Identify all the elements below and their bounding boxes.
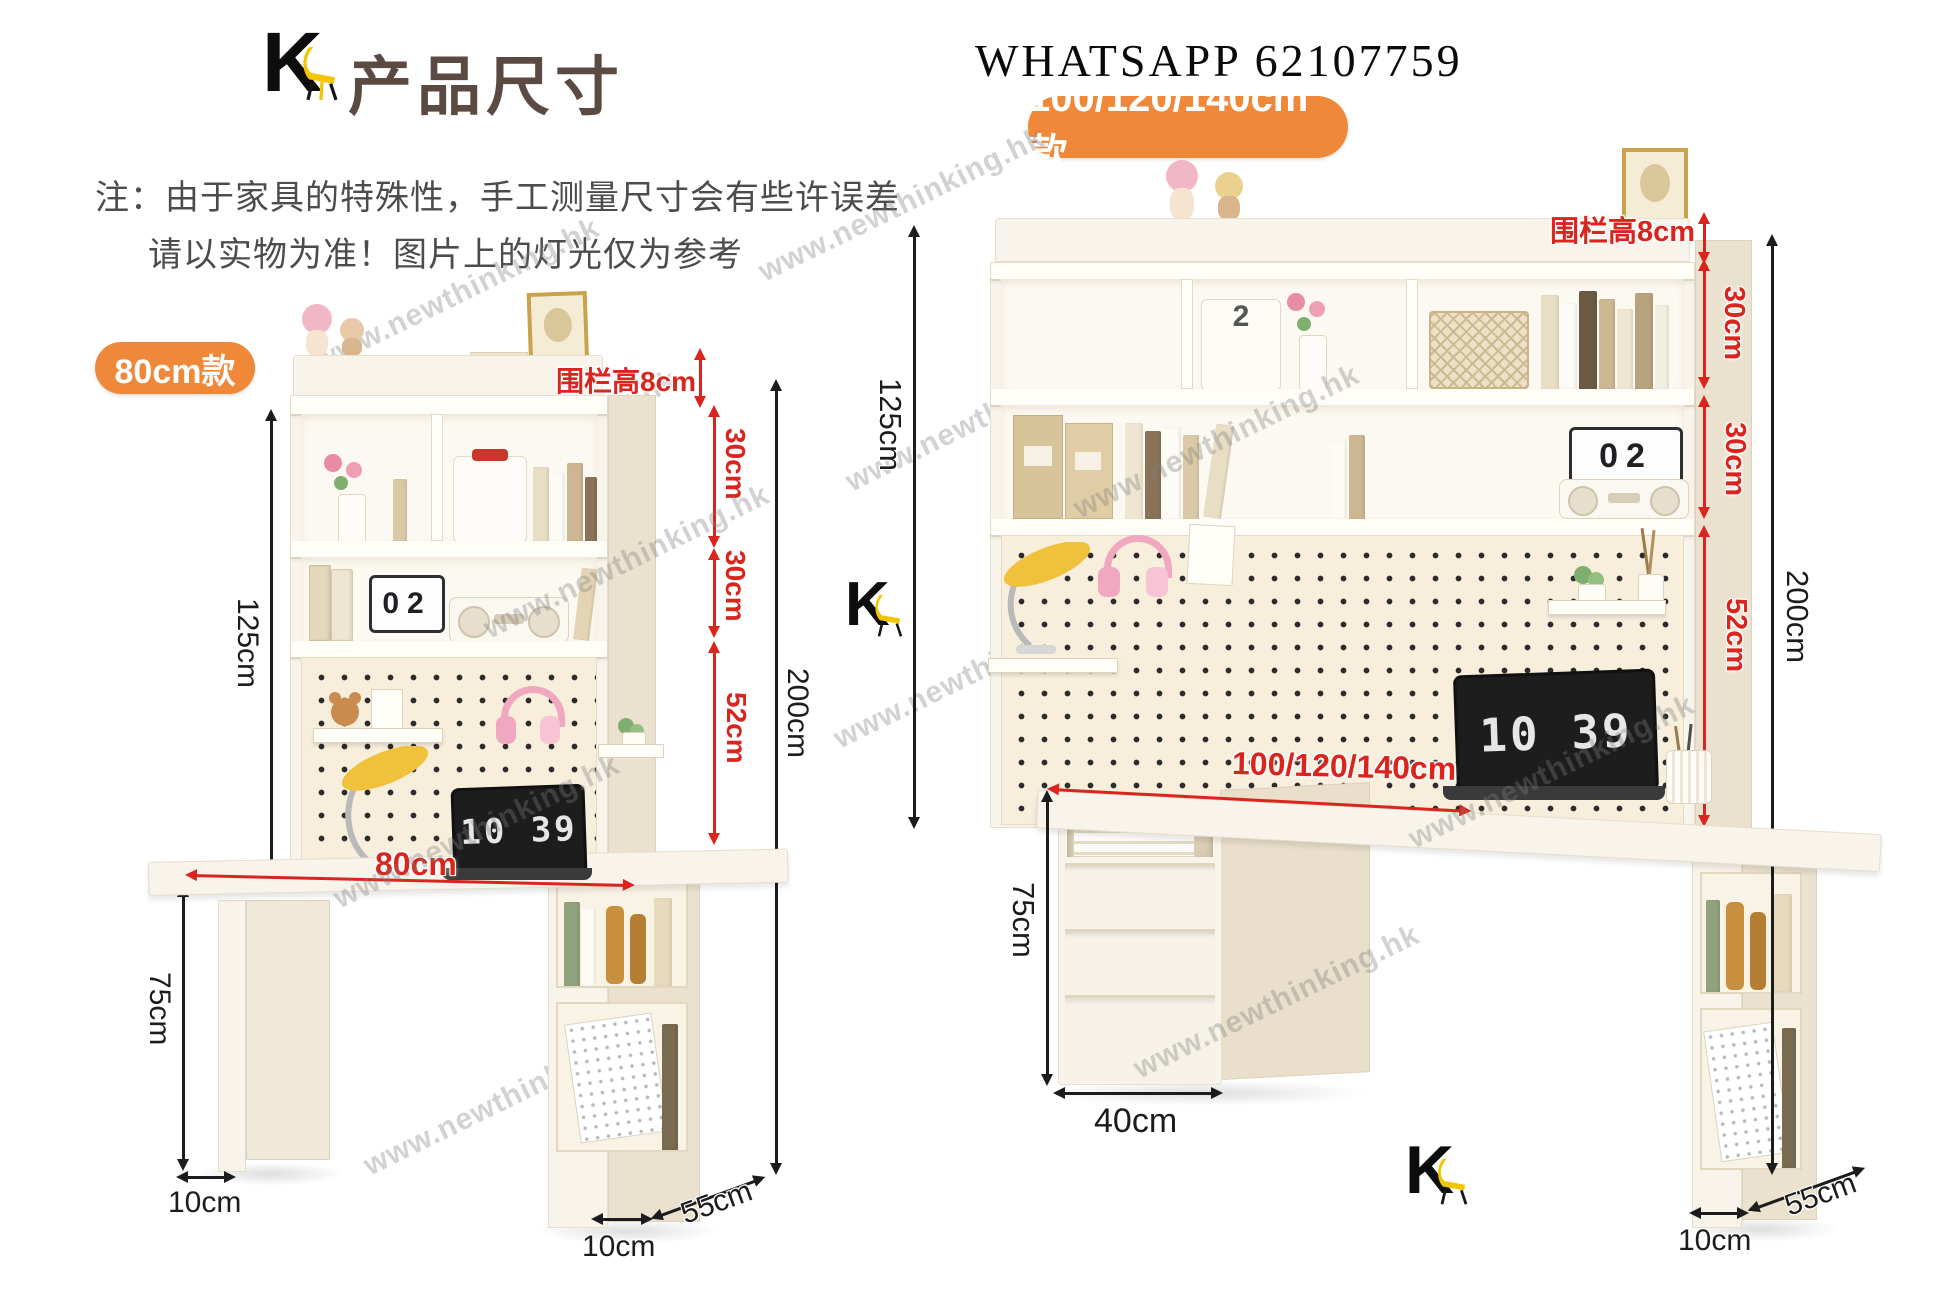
leg-depth-arrow <box>181 1176 231 1179</box>
book-spine <box>1145 431 1161 519</box>
succulent-plant <box>1568 566 1614 602</box>
storage-box <box>453 456 527 543</box>
bottle <box>630 914 646 984</box>
drawer-2 <box>1065 929 1215 996</box>
book-spine <box>1774 894 1792 992</box>
radio-speaker <box>449 597 569 643</box>
desk-width-label: 100/120/140cm <box>1232 745 1457 788</box>
desk-height-arrow <box>1046 795 1049 1081</box>
right-shelf-row-2: 02 <box>1001 405 1684 519</box>
flower-bunch <box>1283 291 1343 389</box>
shelf2-label: 30cm <box>1718 422 1752 496</box>
book-spine <box>1163 427 1181 519</box>
flower-vase <box>316 454 386 541</box>
total-height-arrow <box>1771 239 1774 1170</box>
desk-lamp <box>992 542 1097 662</box>
reed-diffuser <box>1628 528 1668 604</box>
laptop-flip-clock: 10 39 <box>1453 669 1659 798</box>
book-spine <box>1331 441 1347 519</box>
tower-cubby <box>1700 872 1802 994</box>
book-spine <box>1125 423 1143 519</box>
tower-cubby <box>556 1002 688 1152</box>
left-top-doll <box>300 304 334 356</box>
total-height-label: 200cm <box>1780 570 1814 663</box>
book-spine <box>533 467 549 541</box>
desk-height-label: 75cm <box>142 972 176 1045</box>
total-height-label: 200cm <box>780 668 814 758</box>
shelf-divider <box>431 414 443 541</box>
shelf-divider <box>1406 279 1418 389</box>
laptop-time: 10 39 <box>1478 703 1633 762</box>
book-spine <box>551 473 565 541</box>
file-folder <box>309 565 331 641</box>
kraft-box <box>1013 415 1063 519</box>
book-spine <box>1706 900 1720 992</box>
book-spine <box>585 477 597 541</box>
floating-shelf <box>598 744 664 758</box>
laptop-base <box>442 868 592 880</box>
left-hutch-side-panel <box>608 395 656 865</box>
shelf2-arrow <box>1703 400 1706 514</box>
pegboard-label: 52cm <box>719 692 753 764</box>
book-spine <box>662 1024 678 1150</box>
hutch-height-label: 125cm <box>873 378 907 471</box>
book-spine <box>1183 435 1199 519</box>
pegboard-label: 52cm <box>1719 598 1753 672</box>
flip-calendar: 02 <box>369 575 445 633</box>
book-spine <box>1655 305 1669 389</box>
keyboard-book <box>564 1012 668 1143</box>
right-top-doll <box>1162 160 1202 222</box>
bottle <box>1750 912 1766 990</box>
shelf1-label: 30cm <box>1717 286 1751 360</box>
shelf2-label: 30cm <box>718 550 752 622</box>
brand-logo: K <box>845 574 890 636</box>
hutch-height-arrow <box>270 414 273 876</box>
book-spine <box>1541 295 1559 389</box>
file-folder <box>331 569 353 641</box>
teddy-bear <box>327 692 363 728</box>
bottle <box>1726 902 1744 990</box>
book-spine <box>573 568 598 641</box>
left-shelf-row-1 <box>301 414 597 541</box>
greeting-card <box>371 689 403 730</box>
left-variant-badge: 80cm款 <box>95 342 255 394</box>
headphones <box>496 686 562 768</box>
desk-height-label: 75cm <box>1006 882 1040 958</box>
book-spine <box>567 463 583 541</box>
bottle <box>606 906 624 984</box>
succulent-plant <box>612 716 652 746</box>
tower-cubby <box>556 880 688 988</box>
fence-height-arrow <box>699 353 702 403</box>
shelf-divider <box>1181 279 1193 389</box>
drawer-width-arrow <box>1058 1092 1218 1095</box>
book-spine <box>393 479 407 541</box>
numbered-box: 2 <box>1201 299 1281 391</box>
base-front-arrow <box>596 1218 648 1221</box>
base-front-arrow <box>1694 1212 1744 1215</box>
desk-width-label: 80cm <box>375 846 457 883</box>
drawer-width-label: 40cm <box>1094 1102 1177 1141</box>
shelf1-arrow <box>1703 264 1706 384</box>
drawer-3 <box>1065 995 1215 1082</box>
floating-shelf <box>313 728 443 743</box>
total-height-arrow <box>775 384 778 1170</box>
laptop-flip-clock: 10 39 <box>450 784 587 879</box>
kraft-box <box>1065 423 1113 519</box>
base-front-label: 10cm <box>582 1230 655 1264</box>
drawer-unit-front <box>1058 800 1222 1085</box>
chair-icon <box>873 594 907 638</box>
flip-calendar: 02 <box>1569 427 1683 485</box>
note-line-2: 请以实物为准！图片上的灯光仅为参考 <box>148 227 743 276</box>
left-desk-leg-front <box>218 900 246 1172</box>
hutch-height-arrow <box>913 230 916 824</box>
left-desk-leg-side <box>246 900 330 1160</box>
pencil-cup <box>1666 742 1712 804</box>
chair-icon <box>300 46 344 102</box>
product-dimension-sheet: K 产品尺寸 WHATSAPP 62107759 注：由于家具的特殊性，手工测量… <box>0 0 1946 1297</box>
shelf2-arrow <box>713 553 716 633</box>
book-spine <box>582 908 596 986</box>
headphones <box>1098 535 1170 625</box>
drawer-1 <box>1065 863 1215 930</box>
shelf1-arrow <box>713 410 716 543</box>
right-top-doll <box>1212 172 1246 222</box>
laptop-time: 10 39 <box>460 809 579 853</box>
shelf1-label: 30cm <box>718 428 752 500</box>
leg-depth-label: 10cm <box>168 1186 241 1220</box>
fence-height-label: 围栏高8cm <box>1550 208 1695 250</box>
greeting-card <box>1186 524 1235 586</box>
book-spine <box>1599 299 1615 389</box>
floating-shelf <box>1548 600 1666 615</box>
book-spine <box>1349 435 1365 519</box>
book-spine <box>564 902 580 986</box>
hutch-height-label: 125cm <box>230 598 264 688</box>
wire-basket <box>1429 311 1529 389</box>
laptop-base <box>1443 786 1665 800</box>
radio-speaker <box>1559 479 1689 519</box>
left-top-doll <box>338 318 366 356</box>
page-title: 产品尺寸 <box>348 36 624 128</box>
left-shelf-row-2: 02 <box>301 557 597 641</box>
desk-height-arrow <box>182 890 185 1166</box>
keyboard-book <box>1703 1022 1791 1162</box>
book-spine <box>654 898 672 986</box>
book-spine <box>1617 309 1633 389</box>
brand-logo: K <box>1405 1136 1454 1204</box>
pegboard-arrow <box>713 646 716 840</box>
chair-icon <box>1435 1158 1473 1206</box>
note-line-1: 注：由于家具的特殊性，手工测量尺寸会有些许误差 <box>95 170 900 219</box>
right-variant-badge: 100/120/140cm款 <box>1028 96 1348 158</box>
fence-height-label: 围栏高8cm <box>556 360 696 400</box>
base-front-label: 10cm <box>1678 1224 1751 1258</box>
book-spine <box>1203 423 1234 519</box>
book-spine <box>1635 293 1653 389</box>
book-spine <box>1561 303 1577 389</box>
book-spine <box>1579 291 1597 389</box>
right-shelf-row-1: 2 <box>1001 279 1684 389</box>
brand-logo: K <box>262 20 323 104</box>
tower-cubby <box>1700 1008 1802 1170</box>
book-spine <box>1782 1028 1796 1168</box>
